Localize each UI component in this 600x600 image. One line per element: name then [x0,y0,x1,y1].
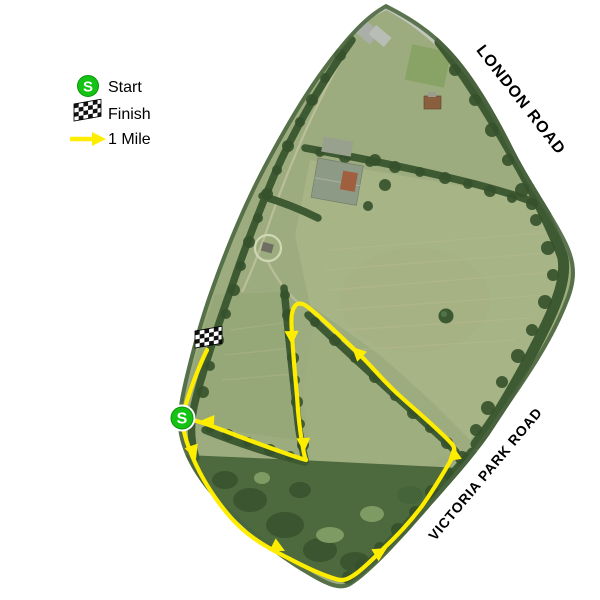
mile-legend-label: 1 Mile [108,131,151,148]
woodland [185,455,460,585]
finish-legend-label: Finish [108,106,151,123]
start-legend-symbol: S [83,79,93,96]
lone-tree [439,309,454,324]
start-marker-symbol: S [177,411,188,428]
mile-arrow-legend-head [92,132,106,146]
start-legend-label: Start [108,79,142,96]
start-marker: S [169,405,196,432]
course-map: LONDON ROAD VICTORIA PARK ROAD S S [0,0,600,600]
legend: S Start Finish 1 Mile [70,76,151,149]
finish-flag-legend-icon [74,99,101,121]
legend-start-row: S Start [78,76,143,97]
legend-mile-row: 1 Mile [70,131,151,148]
legend-finish-row: Finish [74,99,151,123]
